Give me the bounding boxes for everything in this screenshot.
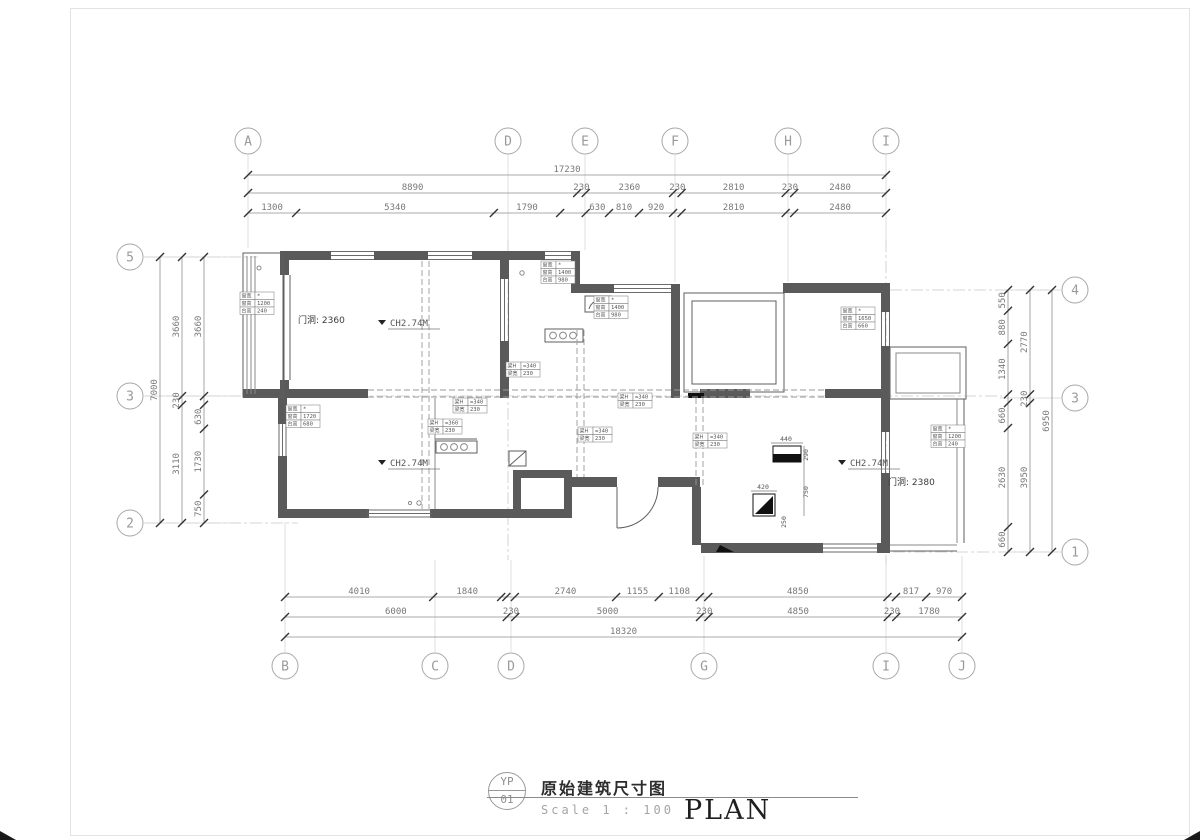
grid-bubble-label: I	[882, 135, 890, 150]
duct-dim-label: 440	[780, 435, 792, 443]
dim-label: 1340	[998, 358, 1008, 380]
grid-bubble-label: F	[671, 135, 679, 150]
table-label: 梁H	[430, 420, 439, 427]
dim-label: 2480	[829, 203, 851, 213]
grid-bubble-label: C	[431, 660, 439, 675]
ceiling-height-text: CH2.74M	[850, 459, 889, 469]
table-label: 窗高	[543, 269, 553, 276]
grid-bubble-label: D	[507, 660, 515, 675]
grid-bubble-A: A	[235, 128, 261, 154]
grid-bubble-label: B	[281, 660, 289, 675]
table-label: 梁H	[455, 399, 464, 406]
table-value: 980	[611, 313, 621, 319]
dim-label: 660	[998, 407, 1008, 423]
level-triangle-icon	[838, 460, 846, 465]
grid-bubble-label: 4	[1071, 284, 1079, 299]
floor-plan-sheet: 1723088902302360230281023024801300534017…	[0, 0, 1200, 840]
grid-bubble-5: 5	[117, 244, 143, 270]
dim-label: 3950	[1020, 467, 1030, 489]
table-label: 梁H	[508, 363, 517, 370]
dim-label: 230	[503, 607, 519, 617]
table-label: 梁宽	[455, 406, 465, 413]
table-label: 窗宽	[933, 426, 943, 433]
table-value: *	[303, 407, 306, 413]
table-value: *	[858, 309, 861, 315]
dim-label: 230	[884, 607, 900, 617]
table-label: 窗高	[288, 413, 298, 420]
table-value: 1400	[558, 270, 571, 276]
ceiling-height-label: CH2.74M	[838, 459, 900, 469]
dim-label: 4850	[787, 607, 809, 617]
grid-bubble-label: 2	[126, 517, 134, 532]
beam-spec-table: 梁H=340梁宽230	[578, 427, 612, 442]
grid-bubble-label: I	[882, 660, 890, 675]
dim-label: 810	[616, 203, 632, 213]
table-value: 230	[635, 402, 645, 408]
table-value: 980	[558, 278, 568, 284]
table-value: 660	[858, 324, 868, 330]
table-value: *	[611, 298, 614, 304]
table-label: 台高	[933, 441, 943, 448]
table-value: *	[948, 427, 951, 433]
beam-spec-table: 梁H=340梁宽230	[506, 362, 540, 377]
dim-label: 1790	[516, 203, 538, 213]
table-label: 窗宽	[242, 293, 252, 300]
dim-label: 3660	[172, 316, 182, 338]
table-label: 台高	[543, 277, 553, 284]
table-value: 230	[710, 442, 720, 448]
windows	[279, 252, 890, 553]
table-value: 680	[303, 422, 313, 428]
dim-label: 660	[998, 531, 1008, 547]
dim-label: 2810	[723, 183, 745, 193]
table-value: 230	[523, 371, 533, 377]
dim-label: 1780	[918, 607, 940, 617]
table-value: *	[257, 294, 260, 300]
dim-label: 5000	[597, 607, 619, 617]
table-label: 窗宽	[596, 297, 606, 304]
table-label: 窗高	[843, 315, 853, 322]
grid-bubble-C: C	[422, 653, 448, 679]
grid-bubble-label: 1	[1071, 546, 1079, 561]
ceiling-height-label: CH2.74M	[378, 319, 440, 329]
dim-label: 17230	[553, 165, 580, 175]
table-value: *	[558, 263, 561, 269]
table-value: 240	[257, 309, 267, 315]
window-spec-table: 窗宽*窗高1200台高240	[240, 292, 274, 315]
dim-label: 1155	[627, 587, 649, 597]
dim-label: 6000	[385, 607, 407, 617]
duct-symbols	[751, 443, 804, 516]
table-value: 1200	[948, 434, 961, 440]
dim-label: 1840	[456, 587, 478, 597]
window-spec-table: 窗宽*窗高1720台高680	[286, 405, 320, 428]
duct-dim-label: 250	[780, 516, 788, 528]
grid-bubble-D: D	[498, 653, 524, 679]
grid-bubble-2: 2	[117, 510, 143, 536]
dim-label: 230	[782, 183, 798, 193]
table-value: 240	[948, 442, 958, 448]
dim-label: 630	[194, 409, 204, 425]
table-value: =360	[445, 421, 458, 427]
window-spec-table: 窗宽*窗高1400台高980	[594, 296, 628, 319]
table-label: 梁H	[620, 394, 629, 401]
table-label: 梁H	[695, 434, 704, 441]
table-value: 230	[470, 407, 480, 413]
table-label: 台高	[242, 308, 252, 315]
dim-label: 920	[648, 203, 664, 213]
table-label: 梁宽	[580, 435, 590, 442]
dim-label: 2770	[1020, 331, 1030, 353]
table-label: 台高	[843, 323, 853, 330]
table-value: 1200	[257, 301, 270, 307]
duct-dim-label: 750	[802, 486, 810, 498]
table-value: 230	[445, 428, 455, 434]
grid-bubble-F: F	[662, 128, 688, 154]
dim-label: 2740	[555, 587, 577, 597]
dim-label: 2480	[829, 183, 851, 193]
grid-bubble-label: A	[244, 135, 252, 150]
dim-label: 1108	[668, 587, 690, 597]
table-value: =340	[523, 364, 536, 370]
table-label: 窗宽	[843, 308, 853, 315]
dim-label: 1730	[194, 451, 204, 473]
table-value: 1720	[303, 414, 316, 420]
grid-bubble-D: D	[495, 128, 521, 154]
window-spec-table: 窗宽*窗高1200台高240	[931, 425, 965, 448]
grid-bubble-I: I	[873, 128, 899, 154]
table-value: =340	[595, 429, 608, 435]
duct-dim-label: 420	[757, 483, 769, 491]
duct-dim-label: 290	[802, 449, 810, 461]
grid-bubble-label: 5	[126, 251, 134, 266]
beam-spec-table: 梁H=360梁宽230	[428, 419, 462, 434]
door-opening-label: 门洞: 2380	[888, 476, 935, 488]
grid-bubble-label: J	[958, 660, 966, 675]
beam-spec-table: 梁H=340梁宽230	[693, 433, 727, 448]
corner-mark-left	[0, 831, 16, 840]
table-label: 梁宽	[620, 401, 630, 408]
grid-bubble-label: 3	[126, 390, 134, 405]
table-value: 1400	[611, 305, 624, 311]
dim-label: 970	[936, 587, 952, 597]
grid-bubble-I: I	[873, 653, 899, 679]
dim-label: 3110	[172, 453, 182, 475]
table-label: 窗高	[596, 304, 606, 311]
dim-label: 550	[998, 292, 1008, 308]
dim-label: 2360	[619, 183, 641, 193]
table-label: 窗宽	[543, 262, 553, 269]
ceiling-height-text: CH2.74M	[390, 459, 429, 469]
dim-label: 1300	[261, 203, 283, 213]
dim-label: 230	[696, 607, 712, 617]
table-value: =340	[710, 435, 723, 441]
grid-bubble-label: D	[504, 135, 512, 150]
level-triangle-icon	[378, 460, 386, 465]
ceiling-height-label: CH2.74M	[378, 459, 440, 469]
grid-bubble-4: 4	[1062, 277, 1088, 303]
dim-label: 2810	[723, 203, 745, 213]
dim-label: 4010	[348, 587, 370, 597]
dim-label: 8890	[402, 183, 424, 193]
dim-label: 817	[903, 587, 919, 597]
ceiling-height-text: CH2.74M	[390, 319, 429, 329]
window-spec-table: 窗宽*窗高1650台高660	[841, 307, 875, 330]
grid-bubble-label: E	[581, 135, 589, 150]
grid-bubble-H: H	[775, 128, 801, 154]
table-label: 窗高	[242, 300, 252, 307]
floor-plan-drawing: 1723088902302360230281023024801300534017…	[0, 0, 1200, 840]
dim-label: 4850	[787, 587, 809, 597]
table-label: 台高	[596, 312, 606, 319]
table-value: 230	[595, 436, 605, 442]
dim-label: 230	[669, 183, 685, 193]
dim-label: 2630	[998, 467, 1008, 489]
beam-spec-table: 梁H=340梁宽230	[618, 393, 652, 408]
table-label: 窗高	[933, 433, 943, 440]
table-label: 梁宽	[695, 441, 705, 448]
table-value: =340	[470, 400, 483, 406]
door-opening-label: 门洞: 2360	[298, 314, 345, 326]
dim-label: 230	[172, 392, 182, 408]
walls	[243, 251, 890, 553]
grid-bubble-B: B	[272, 653, 298, 679]
dim-label: 18320	[610, 627, 637, 637]
window-spec-table: 窗宽*窗高1400台高980	[541, 261, 575, 284]
dim-label: 3660	[194, 316, 204, 338]
beam-spec-table: 梁H=340梁宽230	[453, 398, 487, 413]
table-label: 窗宽	[288, 406, 298, 413]
grid-bubble-label: G	[700, 660, 708, 675]
dim-label: 750	[194, 501, 204, 517]
table-label: 梁H	[580, 428, 589, 435]
grid-bubble-label: H	[784, 135, 792, 150]
grid-bubble-3: 3	[117, 383, 143, 409]
grid-bubble-J: J	[949, 653, 975, 679]
level-triangle-icon	[378, 320, 386, 325]
dim-label: 230	[1020, 391, 1030, 407]
table-label: 梁宽	[508, 370, 518, 377]
dim-label: 6950	[1042, 410, 1052, 432]
grid-bubble-G: G	[691, 653, 717, 679]
grid-bubble-E: E	[572, 128, 598, 154]
grid-bubble-1: 1	[1062, 539, 1088, 565]
table-label: 梁宽	[430, 427, 440, 434]
dim-label: 630	[589, 203, 605, 213]
table-label: 台高	[288, 421, 298, 428]
table-value: 1650	[858, 316, 871, 322]
dim-label: 5340	[384, 203, 406, 213]
table-value: =340	[635, 395, 648, 401]
dim-label: 880	[998, 319, 1008, 335]
dim-label: 7000	[150, 379, 160, 401]
grid-bubble-label: 3	[1071, 392, 1079, 407]
dim-label: 230	[573, 183, 589, 193]
grid-bubble-3: 3	[1062, 385, 1088, 411]
